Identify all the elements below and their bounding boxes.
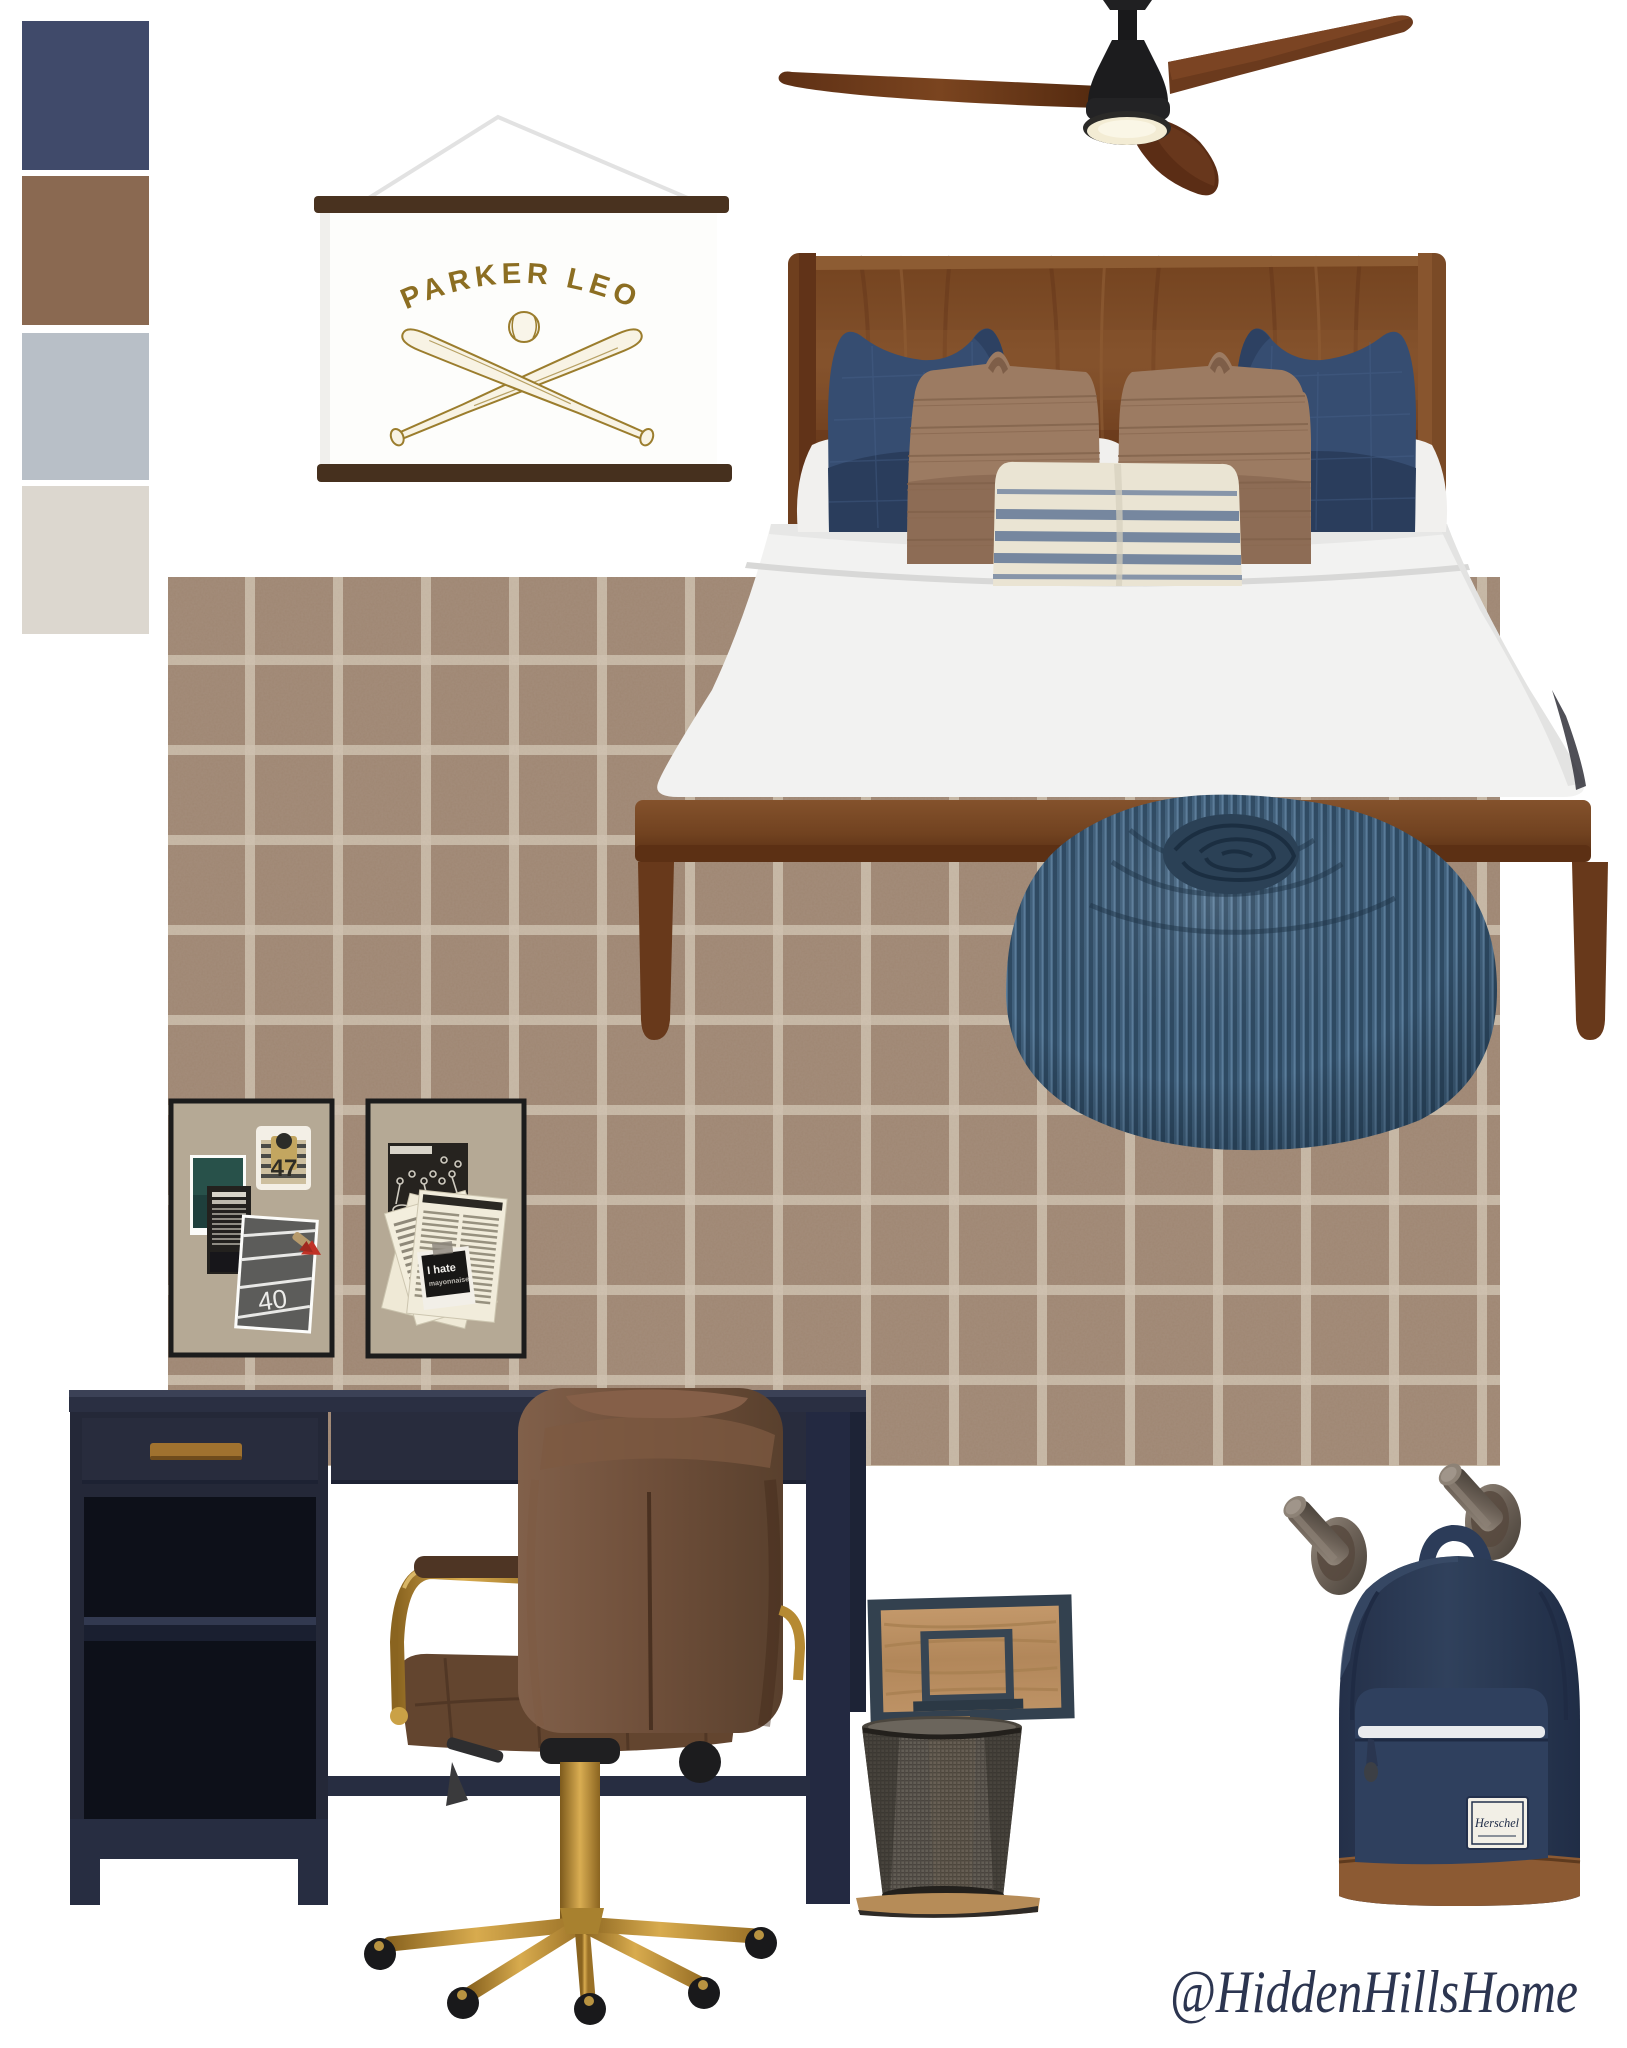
svg-text:@HiddenHillsHome: @HiddenHillsHome bbox=[1170, 1959, 1578, 2025]
svg-text:Herschel: Herschel bbox=[1474, 1815, 1519, 1830]
svg-text:47: 47 bbox=[271, 1155, 298, 1182]
svg-text:40: 40 bbox=[256, 1283, 289, 1317]
